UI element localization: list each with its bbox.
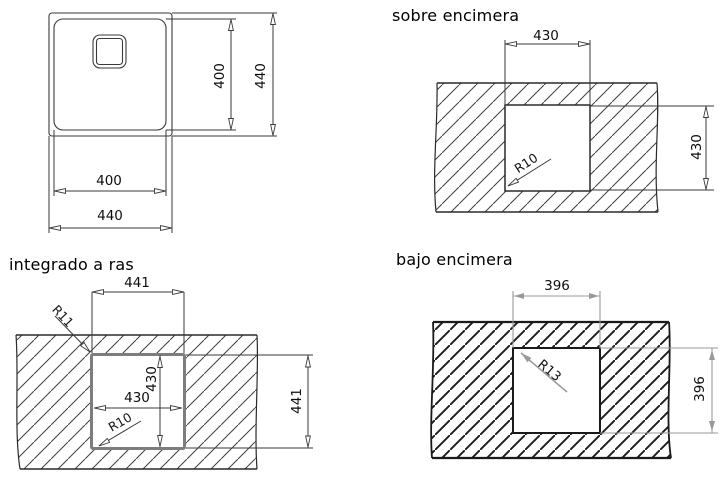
sink-plan-drawing bbox=[49, 13, 277, 233]
sink-outer-edge bbox=[49, 13, 172, 136]
section-title-bajo-encimera: bajo encimera bbox=[396, 250, 513, 269]
dim-label-sobre-width: 430 bbox=[533, 29, 559, 43]
cutout-opening bbox=[505, 105, 590, 191]
drain-outer bbox=[93, 35, 126, 68]
cutout-opening bbox=[513, 348, 600, 433]
installation-diagram-sheet: 400 440 400 440 sobre encimera 430 430 R… bbox=[0, 0, 727, 484]
dim-label-sink-inner-height: 400 bbox=[213, 63, 227, 89]
drain-inner bbox=[97, 39, 123, 65]
section-title-integrado-a-ras: integrado a ras bbox=[9, 255, 134, 274]
dim-label-sink-outer-width: 440 bbox=[97, 209, 123, 223]
dim-label-sink-inner-width: 400 bbox=[96, 174, 122, 188]
dim-label-integrado-inner-width: 430 bbox=[124, 391, 150, 405]
dim-label-bajo-width: 396 bbox=[544, 279, 570, 293]
sink-bowl-edge bbox=[54, 19, 166, 130]
sobre-encimera-drawing bbox=[435, 40, 714, 212]
bajo-encimera-drawing bbox=[431, 291, 718, 458]
dim-label-integrado-inner-height: 430 bbox=[145, 366, 159, 392]
technical-linework bbox=[0, 0, 727, 484]
dim-label-bajo-height: 396 bbox=[693, 376, 707, 402]
dim-label-sink-outer-height: 440 bbox=[254, 63, 268, 89]
dim-label-sobre-height: 430 bbox=[690, 134, 704, 160]
dim-label-integrado-outer-height: 441 bbox=[290, 388, 304, 414]
section-title-sobre-encimera: sobre encimera bbox=[392, 6, 519, 25]
dim-label-integrado-outer-width: 441 bbox=[124, 276, 150, 290]
open-arrowheads-sink bbox=[50, 14, 276, 231]
